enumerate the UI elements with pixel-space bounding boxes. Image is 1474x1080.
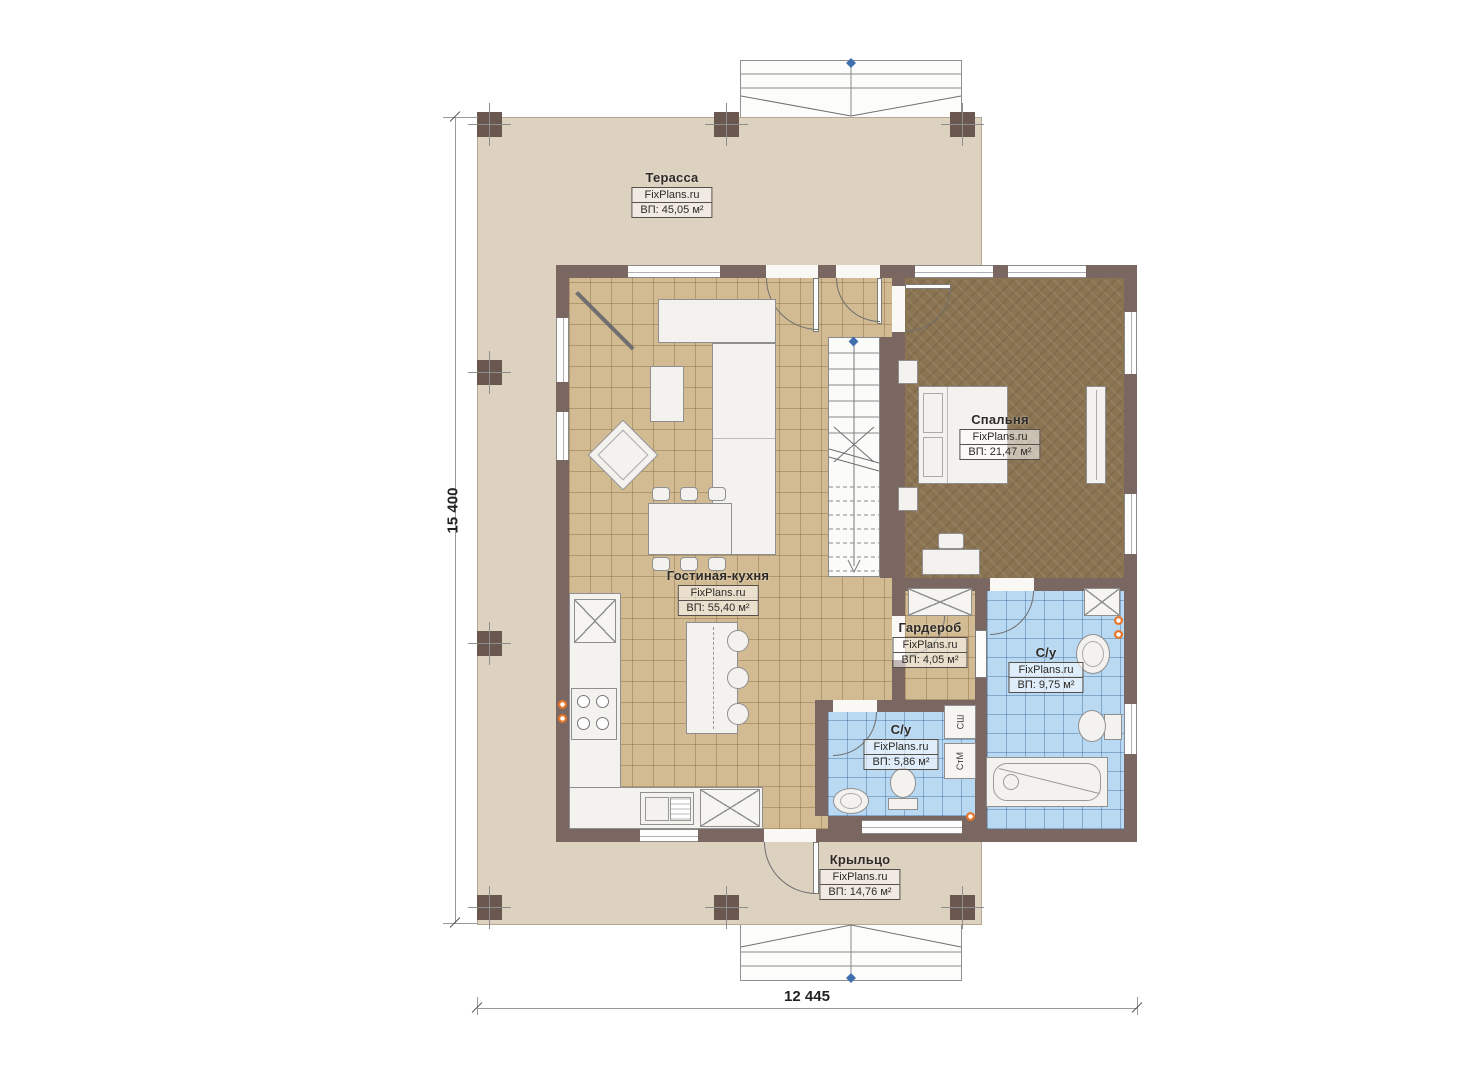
- wall-bathsmall-left: [815, 712, 828, 816]
- wardrobe-storage: [908, 588, 972, 616]
- dryer-label: СШ: [955, 715, 965, 730]
- terrace-post: [950, 895, 975, 920]
- door-opening-bath-main: [990, 578, 1034, 591]
- power-outlet: [558, 714, 567, 723]
- pillow: [923, 437, 943, 477]
- bathtub: [986, 757, 1108, 807]
- room-area: ВП: 21,47 м²: [960, 445, 1039, 459]
- room-info-box: FixPlans.ru ВП: 21,47 м²: [959, 429, 1040, 460]
- room-info-box: FixPlans.ru ВП: 14,76 м²: [819, 869, 900, 900]
- room-name: С/у: [863, 722, 938, 737]
- kitchen-sink: [640, 792, 694, 825]
- sink-bowl: [840, 793, 862, 809]
- bar-stool: [727, 667, 749, 689]
- room-name: Терасса: [631, 170, 712, 185]
- room-area: ВП: 14,76 м²: [820, 885, 899, 899]
- wall-stairwell: [880, 337, 892, 578]
- bath-small-sink: [833, 788, 869, 814]
- door-opening-terrace: [766, 265, 818, 278]
- nightstand: [898, 487, 918, 511]
- terrace-post: [477, 895, 502, 920]
- sink-basin: [645, 797, 669, 821]
- desk-chair: [938, 533, 964, 549]
- staircase: [828, 337, 880, 577]
- room-label-porch: Крыльцо FixPlans.ru ВП: 14,76 м²: [819, 852, 900, 900]
- terrace-post: [477, 360, 502, 385]
- toilet-bowl: [890, 768, 916, 798]
- dining-chair: [652, 487, 670, 501]
- room-area: ВП: 9,75 м²: [1009, 678, 1082, 692]
- dishwasher: [700, 789, 760, 827]
- exterior-steps-top: [740, 60, 962, 118]
- fridge: [574, 599, 616, 643]
- sofa-cushion-line: [713, 438, 775, 439]
- power-outlet: [1114, 616, 1123, 625]
- stove-burner: [596, 695, 609, 708]
- bar-stool: [727, 630, 749, 652]
- terrace-post: [714, 895, 739, 920]
- room-brand: FixPlans.ru: [960, 430, 1039, 445]
- door-wardrobe-bath-closed: [975, 630, 987, 678]
- window: [862, 820, 962, 834]
- power-outlet: [1114, 630, 1123, 639]
- toilet-bowl: [1078, 710, 1106, 742]
- dimension-label-vertical: 15 400: [445, 476, 462, 546]
- sofa-back: [658, 299, 776, 343]
- bathtub-drain: [1003, 774, 1019, 790]
- stove-burner: [577, 695, 590, 708]
- room-label-terrace: Терасса FixPlans.ru ВП: 45,05 м²: [631, 170, 712, 218]
- bedroom-cabinet: [1086, 386, 1106, 484]
- washer-unit: СтМ: [944, 743, 976, 779]
- window: [628, 265, 720, 278]
- stove-burner: [577, 717, 590, 730]
- window: [1124, 704, 1137, 754]
- terrace-post: [477, 631, 502, 656]
- room-brand: FixPlans.ru: [678, 586, 757, 601]
- window: [915, 265, 993, 278]
- room-brand: FixPlans.ru: [820, 870, 899, 885]
- desk: [922, 549, 980, 575]
- room-label-bathroom-small: С/у FixPlans.ru ВП: 5,86 м²: [863, 722, 938, 770]
- terrace-post: [950, 112, 975, 137]
- room-label-bedroom: Спальня FixPlans.ru ВП: 21,47 м²: [959, 412, 1040, 460]
- window: [1008, 265, 1086, 278]
- window: [556, 318, 569, 382]
- floor-plan-canvas: 15 400 12 445: [0, 0, 1474, 1080]
- dimension-label-horizontal: 12 445: [772, 988, 842, 1005]
- room-area: ВП: 45,05 м²: [632, 203, 711, 217]
- power-outlet: [966, 812, 975, 821]
- room-info-box: FixPlans.ru ВП: 45,05 м²: [631, 187, 712, 218]
- bath-storage: [1084, 588, 1120, 616]
- terrace-post: [477, 112, 502, 137]
- room-area: ВП: 5,86 м²: [864, 755, 937, 769]
- room-label-bathroom-main: С/у FixPlans.ru ВП: 9,75 м²: [1008, 645, 1083, 693]
- room-info-box: FixPlans.ru ВП: 5,86 м²: [863, 739, 938, 770]
- coffee-table: [650, 366, 684, 422]
- window: [640, 829, 698, 842]
- nightstand: [898, 360, 918, 384]
- door-opening-entrance: [764, 829, 816, 842]
- room-area: ВП: 55,40 м²: [678, 601, 757, 615]
- terrace-post: [714, 112, 739, 137]
- room-name: Гардероб: [892, 620, 967, 635]
- pillow: [923, 393, 943, 433]
- washer-label: СтМ: [955, 752, 965, 770]
- stove-burner: [596, 717, 609, 730]
- dimension-ext-bottom: [443, 923, 478, 924]
- room-label-living-kitchen: Гостиная-кухня FixPlans.ru ВП: 55,40 м²: [667, 568, 769, 616]
- window: [1124, 312, 1137, 374]
- window: [556, 412, 569, 460]
- room-brand: FixPlans.ru: [1009, 663, 1082, 678]
- window: [1124, 494, 1137, 554]
- dryer-unit: СШ: [944, 705, 976, 739]
- toilet-tank: [888, 798, 918, 810]
- dining-chair: [708, 487, 726, 501]
- toilet-tank: [1104, 714, 1122, 740]
- dimension-ext-top: [443, 117, 478, 118]
- room-info-box: FixPlans.ru ВП: 4,05 м²: [892, 637, 967, 668]
- dining-chair: [680, 487, 698, 501]
- room-label-wardrobe: Гардероб FixPlans.ru ВП: 4,05 м²: [892, 620, 967, 668]
- door-opening-bedroom: [892, 286, 905, 332]
- room-brand: FixPlans.ru: [864, 740, 937, 755]
- sink-bowl: [1082, 641, 1104, 667]
- room-info-box: FixPlans.ru ВП: 55,40 м²: [677, 585, 758, 616]
- room-brand: FixPlans.ru: [632, 188, 711, 203]
- room-name: С/у: [1008, 645, 1083, 660]
- room-name: Спальня: [959, 412, 1040, 427]
- cabinet-line: [1096, 390, 1097, 480]
- door-opening-bath-small: [833, 700, 877, 712]
- dining-table: [648, 503, 732, 555]
- bar-stool: [727, 703, 749, 725]
- stove: [571, 688, 617, 740]
- blanket-line: [947, 387, 948, 483]
- sink-drainer: [670, 797, 691, 821]
- room-info-box: FixPlans.ru ВП: 9,75 м²: [1008, 662, 1083, 693]
- island-divider: [713, 627, 714, 729]
- room-name: Гостиная-кухня: [667, 568, 769, 583]
- exterior-steps-bottom: [740, 923, 962, 981]
- dimension-line-horizontal: [477, 1008, 1137, 1009]
- room-area: ВП: 4,05 м²: [893, 653, 966, 667]
- power-outlet: [558, 700, 567, 709]
- room-name: Крыльцо: [819, 852, 900, 867]
- room-brand: FixPlans.ru: [893, 638, 966, 653]
- door-opening-stairhall: [836, 265, 880, 278]
